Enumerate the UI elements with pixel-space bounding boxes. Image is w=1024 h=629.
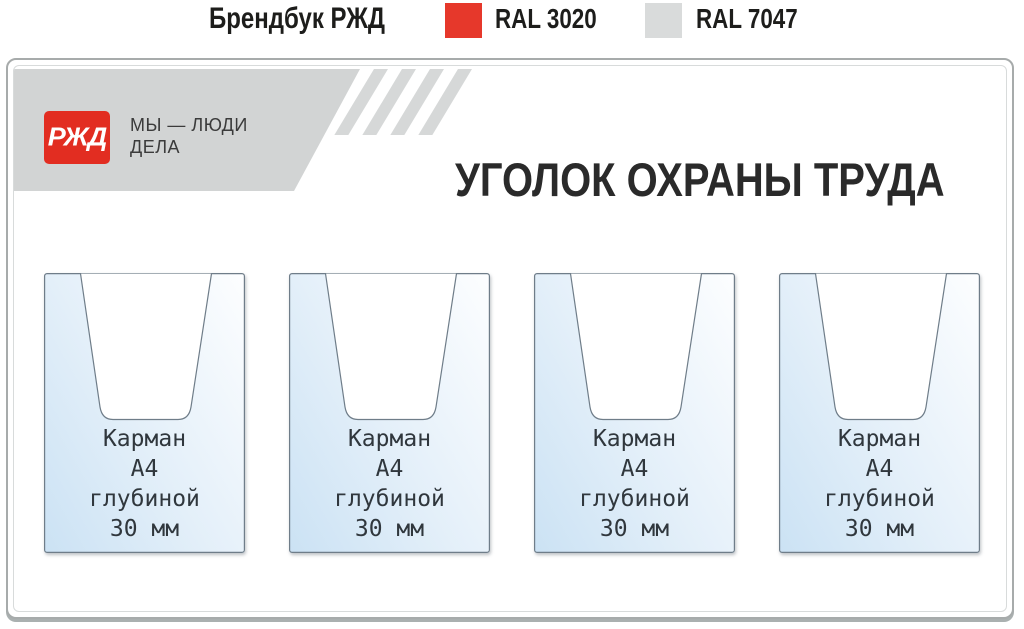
- slogan-line-1: МЫ — ЛЮДИ: [130, 114, 248, 136]
- pocket-label-line: Карман: [44, 424, 245, 454]
- ral-7047-label: RAL 7047: [696, 3, 798, 35]
- pocket-a4-4: Карман А4 глубиной 30 мм: [779, 273, 980, 553]
- pocket-label-line: Карман: [779, 424, 980, 454]
- brandbook-title: Брендбук РЖД: [209, 2, 385, 36]
- pocket-label: Карман А4 глубиной 30 мм: [289, 424, 490, 544]
- pocket-label-line: глубиной: [534, 484, 735, 514]
- pocket-label: Карман А4 глубиной 30 мм: [534, 424, 735, 544]
- pocket-label-line: глубиной: [289, 484, 490, 514]
- pocket-label-line: 30 мм: [534, 514, 735, 544]
- pocket-label-line: А4: [289, 454, 490, 484]
- slogan-line-2: ДЕЛА: [130, 136, 248, 158]
- pocket-label-line: А4: [44, 454, 245, 484]
- pocket-label: Карман А4 глубиной 30 мм: [44, 424, 245, 544]
- ral-3020-swatch: [445, 3, 482, 38]
- legend-header: Брендбук РЖД RAL 3020 RAL 7047: [0, 0, 1024, 52]
- rzd-logo-text: РЖД: [48, 123, 107, 152]
- pocket-label-line: А4: [779, 454, 980, 484]
- pocket-a4-3: Карман А4 глубиной 30 мм: [534, 273, 735, 553]
- pocket-label-line: глубиной: [44, 484, 245, 514]
- pocket-label-line: Карман: [534, 424, 735, 454]
- board-title: УГОЛОК ОХРАНЫ ТРУДА: [455, 152, 945, 207]
- pocket-a4-1: Карман А4 глубиной 30 мм: [44, 273, 245, 553]
- pocket-label-line: 30 мм: [779, 514, 980, 544]
- slogan: МЫ — ЛЮДИ ДЕЛА: [130, 114, 248, 158]
- pocket-label-line: глубиной: [779, 484, 980, 514]
- ral-3020-label: RAL 3020: [495, 3, 597, 35]
- info-board: РЖД МЫ — ЛЮДИ ДЕЛА УГОЛОК ОХРАНЫ ТРУДА К…: [13, 65, 1007, 612]
- ral-7047-swatch: [645, 3, 682, 38]
- rzd-logo: РЖД: [44, 111, 110, 164]
- pocket-label-line: А4: [534, 454, 735, 484]
- pocket-label: Карман А4 глубиной 30 мм: [779, 424, 980, 544]
- pocket-a4-2: Карман А4 глубиной 30 мм: [289, 273, 490, 553]
- pocket-label-line: 30 мм: [44, 514, 245, 544]
- info-board-frame: РЖД МЫ — ЛЮДИ ДЕЛА УГОЛОК ОХРАНЫ ТРУДА К…: [6, 58, 1014, 619]
- pocket-label-line: 30 мм: [289, 514, 490, 544]
- pocket-label-line: Карман: [289, 424, 490, 454]
